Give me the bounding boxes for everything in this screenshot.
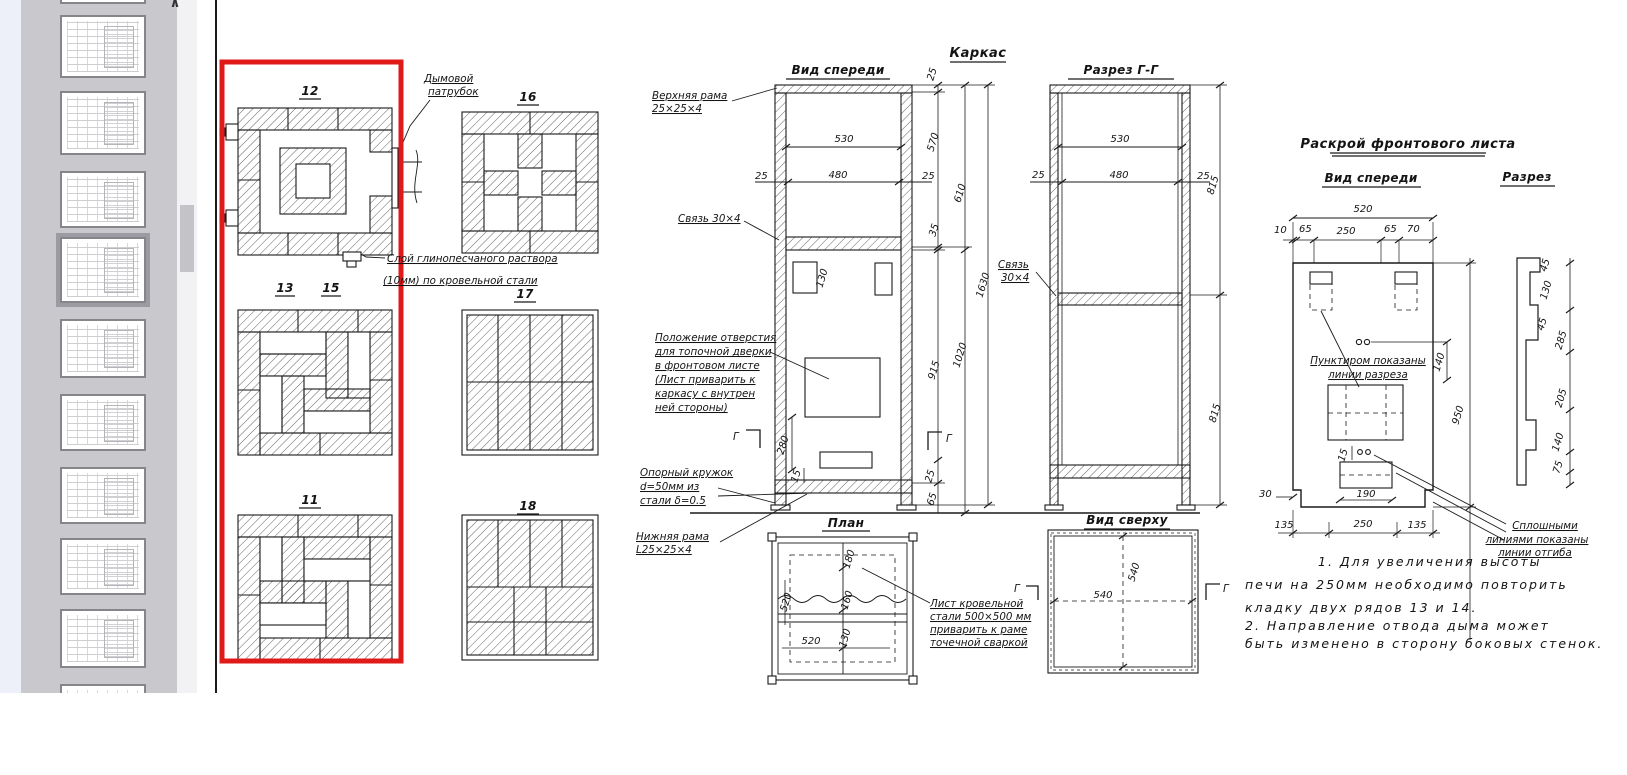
opening-note: ней стороны) [655,402,728,414]
dim: 915 [927,360,943,381]
note-line: 2. Направление отвода дыма может [1245,618,1550,633]
dim: 130 [1539,280,1555,301]
dim: 130 [838,628,854,649]
dim: 540 [1093,590,1112,601]
app-left-strip [0,0,21,693]
dim: 75 [1551,460,1565,475]
support-circle-note: стали δ=0.5 [640,495,706,507]
page-thumbnail-10[interactable] [60,684,146,693]
thumbnail-sketch [67,243,139,297]
dim: 25 [922,171,935,182]
note-line: кладку двух рядов 13 и 14. [1245,600,1477,615]
opening-note: в фронтовом листе [655,360,760,372]
dim: 10 [1274,225,1287,236]
cutting-section-title: Разрез [1502,170,1551,184]
sheet-weld-note: точечной сваркой [930,637,1028,649]
page-thumbnail-1[interactable] [60,15,146,78]
thumbnail-sketch [67,615,139,662]
dim: 35 [927,223,941,238]
plan-17 [462,310,598,455]
dim: 480 [828,170,847,181]
sheet-weld-note: Лист кровельной [929,598,1024,610]
sheet-weld-note: стали 500×500 мм [930,611,1031,623]
section-mark-g: Г [1223,583,1230,595]
dim: 480 [1109,170,1128,181]
pdf-viewer-window: ∧ [0,0,1627,775]
dim: 530 [1110,134,1129,145]
dim: 25 [925,67,939,82]
dim: 190 [1356,489,1375,500]
dim: 570 [926,132,942,153]
chevron-up-icon[interactable]: ∧ [166,0,184,12]
dim: 815 [1208,403,1224,424]
dashed-lines-note: Пунктиром показаны [1310,355,1426,367]
section-mark-g: Г [1014,583,1021,595]
dim: 950 [1451,405,1467,426]
plan-13-15 [238,310,392,455]
page-thumbnail-4-selected[interactable] [60,237,146,303]
lower-frame-note: Нижняя рама [636,531,709,543]
plan-13-label: 13 [276,281,293,295]
upper-frame-note: Верхняя рама [652,90,727,102]
opening-note: для топочной дверки [654,346,772,358]
frame-title: Каркас [949,46,1006,61]
top-view-drawing [1026,530,1220,673]
note-line: печи на 250мм необходимо повторить [1245,577,1568,592]
dim: 250 [1336,226,1355,237]
dim: 530 [834,134,853,145]
thumbnail-sketch [67,325,139,372]
mortar-note: Слой глинопесчаного раствора [387,253,558,265]
page-thumbnail-6[interactable] [60,394,146,451]
cutting-front-title: Вид спереди [1324,171,1417,185]
dim: 610 [953,183,969,204]
dim: 205 [1554,388,1570,409]
support-circle-note: Опорный кружок [640,467,734,479]
page-thumbnail-8[interactable] [60,538,146,595]
front-view-drawing [718,82,995,542]
dim: 45 [1535,317,1549,332]
dim: 25 [1197,171,1210,182]
dim: 65 [1299,224,1312,235]
dim: 520 [1353,204,1372,215]
dim: 1630 [975,271,993,299]
solid-lines-note: Сплошными [1512,520,1578,532]
smoke-pipe-note: патрубок [428,86,479,98]
thumbnail-sketch [67,177,139,222]
plan-16 [462,112,598,253]
opening-note: каркасу с внутрен [655,388,755,400]
tie-note-2: Связь [998,259,1029,271]
opening-note: (Лист приварить к [655,374,756,386]
dim: 25 [755,171,768,182]
sidebar-scrollbar-thumb[interactable] [180,205,194,272]
thumbnail-sketch [67,400,139,445]
page-thumbnail-7[interactable] [60,467,146,524]
dim: 520 [779,592,795,613]
dim: 540 [1127,562,1143,583]
dashed-lines-note: линии разреза [1327,369,1408,381]
dim: 45 [1538,258,1552,273]
dim: 135 [1274,520,1293,531]
section-g-g-drawing [1030,82,1227,510]
sidebar-scrollbar-track[interactable] [177,0,197,693]
dim: 25 [923,469,937,484]
note-line: быть изменено в сторону боковых стенок. [1245,636,1603,651]
plan-15-label: 15 [322,281,339,295]
section-mark-g: Г [733,431,740,443]
solid-lines-note: линиями показаны [1485,534,1589,546]
page-thumbnail-0[interactable] [60,0,146,4]
thumbnail-sidebar [21,0,177,693]
dim: 520 [801,636,820,647]
upper-frame-note: 25×25×4 [652,103,702,115]
dim: 30 [1259,489,1272,500]
dim: 140 [1432,352,1448,373]
tie-note-2: 30×4 [1001,272,1029,284]
thumbnail-sketch [67,21,139,72]
front-view-title: Вид спереди [791,63,884,77]
mortar-note: (10мм) по кровельной стали [383,275,538,287]
thumbnail-sketch [67,473,139,518]
dim: 140 [1551,432,1567,453]
dim: 180 [842,549,858,570]
thumbnail-sketch [67,690,139,693]
support-circle-note: d=50мм из [640,481,700,493]
plan-title: План [828,516,864,530]
plan-11-label: 11 [301,493,318,507]
smoke-pipe-note: Дымовой [423,73,474,85]
dim: 25 [1032,170,1045,181]
section-mark-g: Г [946,433,953,445]
sheet-weld-note: приварить к раме [930,624,1027,636]
plan-12-label: 12 [301,84,318,98]
cutting-title: Раскрой фронтового листа [1300,137,1515,152]
page-thumbnail-3[interactable] [60,171,146,228]
dim: 65 [1384,224,1397,235]
thumbnail-sketch [67,544,139,589]
page-thumbnail-2[interactable] [60,91,146,155]
dim: 70 [1407,224,1420,235]
page-thumbnail-9[interactable] [60,609,146,668]
dim: 285 [1554,330,1570,351]
drawing-page: 12 16 13 15 17 11 18 Дымовой патрубок Сл… [200,0,1627,693]
thumbnail-sketch [67,97,139,149]
note-line: 1. Для увеличения высоты [1318,554,1542,569]
plan-16-label: 16 [519,90,536,104]
dim: 250 [1353,519,1372,530]
tie-note: Связь 30×4 [678,213,741,225]
plan-18-label: 18 [519,499,536,513]
lower-frame-note: L25×25×4 [636,544,692,556]
section-g-g-title: Разрез Г-Г [1083,63,1159,77]
plan-11 [238,515,392,660]
dim: 15 [1336,448,1350,463]
opening-note: Положение отверстия [655,332,776,344]
dim: 160 [840,590,856,611]
top-view-title: Вид сверху [1086,513,1168,527]
dim: 1020 [952,341,970,369]
plan-18 [462,515,598,660]
page-thumbnail-5[interactable] [60,319,146,378]
dim: 135 [1407,520,1426,531]
plan-17-label: 17 [516,287,534,301]
